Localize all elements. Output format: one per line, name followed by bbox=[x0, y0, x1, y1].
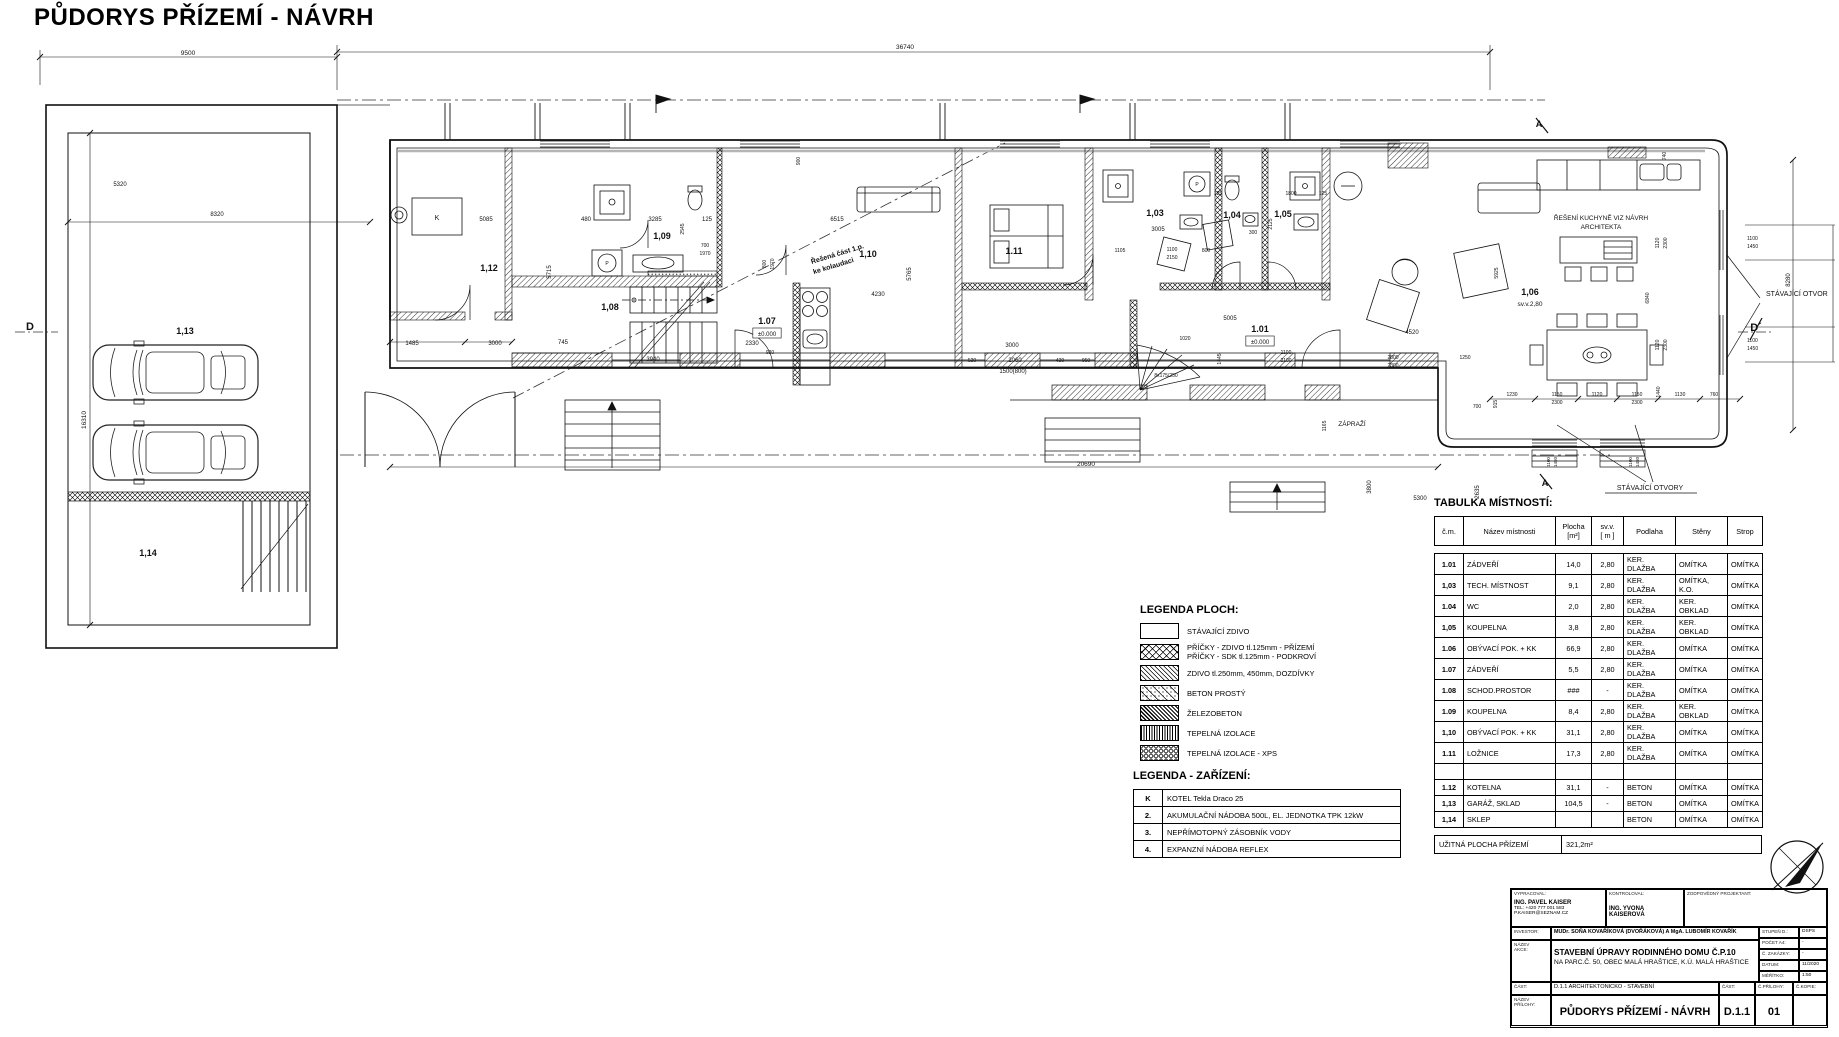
rooms-header-cell: sv.v. [ m ] bbox=[1592, 517, 1624, 546]
rooms-cell bbox=[1556, 812, 1592, 828]
tb-akce-label: NÁZEV AKCE: bbox=[1511, 940, 1551, 982]
zarizeni-cell: KOTEL Tekla Draco 25 bbox=[1163, 790, 1401, 807]
plan-label: 2300 bbox=[1663, 237, 1669, 248]
plan-label: 1100 bbox=[1747, 338, 1758, 344]
plan-label: 740 bbox=[1662, 152, 1668, 161]
rooms-cell: - bbox=[1592, 796, 1624, 812]
plan-label: A bbox=[1536, 119, 1543, 129]
rooms-cell bbox=[1435, 764, 1464, 780]
plan-label: 950 bbox=[1082, 358, 1091, 364]
rooms-cell bbox=[1592, 812, 1624, 828]
legend-zarizeni-title: LEGENDA - ZAŘÍZENÍ: bbox=[1133, 770, 1401, 782]
plan-label: 5300 bbox=[1413, 496, 1427, 502]
rooms-cell: OMÍTKA bbox=[1728, 554, 1763, 575]
rooms-row: 1.04WC2,02,80KER. DLAŽBAKER. OBKLADOMÍTK… bbox=[1435, 596, 1763, 617]
rooms-header-cell: Plocha [m²] bbox=[1556, 517, 1592, 546]
rooms-table-title: TABULKA MÍSTNOSTÍ: bbox=[1434, 497, 1764, 509]
plan-label: 915 bbox=[1493, 400, 1499, 409]
tb-meritko-value: 1:50 bbox=[1799, 971, 1827, 982]
plan-label: 1020 bbox=[1179, 336, 1190, 342]
rooms-cell: 17,3 bbox=[1556, 743, 1592, 764]
legend-item-label: TEPELNÁ IZOLACE bbox=[1187, 729, 1255, 738]
rooms-cell bbox=[1624, 764, 1676, 780]
plan-label: D´ bbox=[1750, 322, 1762, 334]
hatch-swatch-icon bbox=[1140, 665, 1179, 681]
plan-label: 1450 bbox=[1635, 456, 1640, 467]
usable-area-label: UŽITNÁ PLOCHA PŘÍZEMÍ bbox=[1435, 836, 1562, 854]
zarizeni-cell: 3. bbox=[1134, 824, 1163, 841]
tb-priloha-label: NÁZEV PŘÍLOHY: bbox=[1511, 995, 1551, 1026]
plan-label: ZÁPRAŽÍ bbox=[1338, 419, 1366, 428]
rooms-cell: OMÍTKA bbox=[1728, 575, 1763, 596]
plan-label: 800 bbox=[1202, 248, 1211, 254]
empty-swatch-icon bbox=[1140, 623, 1179, 639]
plan-label: 2150 bbox=[1166, 255, 1177, 261]
garage-stairs-icon bbox=[241, 501, 308, 592]
plan-label: 5715 bbox=[547, 265, 553, 279]
legend-item-label: ŽELEZOBETON bbox=[1187, 709, 1242, 718]
rooms-cell bbox=[1676, 764, 1728, 780]
zarizeni-cell: EXPANZNÍ NÁDOBA REFLEX bbox=[1163, 841, 1401, 858]
plan-label: 1120 bbox=[1592, 392, 1603, 398]
car-icon bbox=[93, 421, 258, 484]
plan-label: 5765 bbox=[907, 267, 913, 281]
rooms-cell: 1,10 bbox=[1435, 722, 1464, 743]
rooms-row: 1.11LOŽNICE17,32,80KER. DLAŽBAOMÍTKAOMÍT… bbox=[1435, 743, 1763, 764]
plan-label: 3940 bbox=[646, 357, 660, 363]
legend-item-label: STÁVAJÍCÍ ZDIVO bbox=[1187, 627, 1249, 636]
tb-prilohy-label: Č.PŘÍLOHY: bbox=[1755, 982, 1793, 995]
rooms-row: 1,03TECH. MÍSTNOST9,12,80KER. DLAŽBAOMÍT… bbox=[1435, 575, 1763, 596]
rooms-cell: 1,03 bbox=[1435, 575, 1464, 596]
rooms-cell: 2,80 bbox=[1592, 659, 1624, 680]
plan-label: 5925 bbox=[1494, 267, 1500, 278]
plan-label: P bbox=[605, 261, 609, 267]
plan-label: 1970 bbox=[699, 251, 710, 257]
rooms-cell: OMÍTKA bbox=[1728, 617, 1763, 638]
rooms-row: 1.01ZÁDVEŘÍ14,02,80KER. DLAŽBAOMÍTKAOMÍT… bbox=[1435, 554, 1763, 575]
plan-label: 5320 bbox=[113, 182, 127, 188]
rooms-cell: ### bbox=[1556, 680, 1592, 701]
rooms-cell: 2,0 bbox=[1556, 596, 1592, 617]
plan-label: 1130 bbox=[1675, 392, 1686, 398]
plan-label: 125 bbox=[1319, 191, 1328, 197]
plan-label: 1.11 bbox=[1005, 246, 1022, 256]
plan-label: 1165 bbox=[1322, 420, 1328, 431]
rooms-cell: 1.11 bbox=[1435, 743, 1464, 764]
plan-label: STÁVAJÍCÍ OTVOR bbox=[1766, 289, 1828, 298]
rooms-cell: KER. OBKLAD bbox=[1676, 596, 1728, 617]
tb-cast-label: ČÁST: bbox=[1511, 982, 1551, 995]
rooms-row: 1,14SKLEPBETONOMÍTKAOMÍTKA bbox=[1435, 812, 1763, 828]
plan-label: 1800 bbox=[1285, 191, 1296, 197]
rooms-cell: OMÍTKA bbox=[1728, 722, 1763, 743]
leader-lines bbox=[1536, 118, 1762, 493]
rooms-cell: 31,1 bbox=[1556, 722, 1592, 743]
plan-label: 2300 bbox=[1663, 339, 1669, 350]
rooms-cell: 1.04 bbox=[1435, 596, 1464, 617]
plan-label: 2545 bbox=[680, 223, 686, 234]
tb-vypracoval: VYPRACOVAL: ING. PAVEL KAISER TEL: +420 … bbox=[1511, 889, 1606, 927]
plan-label: 420 bbox=[1056, 358, 1065, 364]
rooms-cell: BETON bbox=[1624, 812, 1676, 828]
plan-label: K bbox=[435, 215, 440, 222]
zb-swatch-icon bbox=[1140, 705, 1179, 721]
legend-zarizeni-table: KKOTEL Tekla Draco 252.AKUMULAČNÍ NÁDOBA… bbox=[1133, 789, 1401, 858]
tb-kopie-value bbox=[1793, 995, 1827, 1026]
rooms-cell: - bbox=[1592, 680, 1624, 701]
plan-label: D bbox=[26, 321, 34, 333]
rooms-cell: WC bbox=[1464, 596, 1556, 617]
rooms-cell: 2,80 bbox=[1592, 617, 1624, 638]
rooms-cell: GARÁŽ, SKLAD bbox=[1464, 796, 1556, 812]
rooms-table-footer: UŽITNÁ PLOCHA PŘÍZEMÍ 321,2m² bbox=[1434, 835, 1762, 854]
floorplan-page: { "page": { "title": "PŮDORYS PŘÍZEMÍ - … bbox=[0, 0, 1839, 1037]
plan-label: 2125 bbox=[1268, 218, 1274, 229]
rooms-cell: OMÍTKA bbox=[1676, 796, 1728, 812]
rooms-cell: BETON bbox=[1624, 780, 1676, 796]
legend-ploch: LEGENDA PLOCH: STÁVAJÍCÍ ZDIVOPŘÍČKY - Z… bbox=[1140, 604, 1420, 765]
plan-label: 700 bbox=[701, 243, 710, 249]
rooms-cell: 1.09 bbox=[1435, 701, 1464, 722]
plan-label: 900 bbox=[796, 157, 802, 166]
plan-label: 3800 bbox=[1367, 480, 1373, 494]
rooms-cell: KER. DLAŽBA bbox=[1624, 743, 1676, 764]
rooms-row: 1.06OBÝVACÍ POK. + KK66,92,80KER. DLAŽBA… bbox=[1435, 638, 1763, 659]
legend-item-label: TEPELNÁ IZOLACE - XPS bbox=[1187, 749, 1277, 758]
plan-label: 1250 bbox=[1459, 355, 1470, 361]
rooms-cell: OMÍTKA bbox=[1728, 638, 1763, 659]
plan-label: 2300 bbox=[1551, 400, 1562, 406]
rooms-cell: OMÍTKA bbox=[1728, 780, 1763, 796]
plan-label: 745 bbox=[558, 340, 569, 346]
rooms-cell: SKLEP bbox=[1464, 812, 1556, 828]
plan-label: 9500 bbox=[181, 50, 196, 57]
rooms-cell: - bbox=[1592, 780, 1624, 796]
tb-cast-value: D.1.1 ARCHITEKTONICKO - STAVEBNÍ bbox=[1551, 982, 1719, 995]
rooms-cell: KER. DLAŽBA bbox=[1624, 722, 1676, 743]
rooms-row: 1,05KOUPELNA3,82,80KER. DLAŽBAKER. OBKLA… bbox=[1435, 617, 1763, 638]
tb-pocet-value: - bbox=[1799, 938, 1827, 949]
plan-label: ŘEŠENÍ KUCHYNĚ VIZ NÁVRH bbox=[1554, 213, 1649, 222]
rooms-table-body: 1.01ZÁDVEŘÍ14,02,80KER. DLAŽBAOMÍTKAOMÍT… bbox=[1434, 553, 1763, 828]
rooms-cell: KOUPELNA bbox=[1464, 617, 1556, 638]
plan-label: 3000 bbox=[1005, 343, 1019, 349]
rooms-cell: 9,1 bbox=[1556, 575, 1592, 596]
rooms-cell: OBÝVACÍ POK. + KK bbox=[1464, 638, 1556, 659]
rooms-cell: 104,5 bbox=[1556, 796, 1592, 812]
rooms-cell: OMÍTKA bbox=[1676, 554, 1728, 575]
plan-label: 2300 bbox=[1631, 400, 1642, 406]
rooms-cell: OMÍTKA bbox=[1728, 796, 1763, 812]
rooms-cell: OMÍTKA bbox=[1676, 743, 1728, 764]
rooms-cell bbox=[1464, 764, 1556, 780]
plan-label: 1,08 bbox=[601, 302, 619, 312]
title-block: VYPRACOVAL: ING. PAVEL KAISER TEL: +420 … bbox=[1510, 888, 1828, 1028]
plan-label: 4520 bbox=[1405, 330, 1419, 336]
car-icon bbox=[93, 341, 258, 404]
rooms-cell: KER. DLAŽBA bbox=[1624, 575, 1676, 596]
plan-label: 1500(800) bbox=[999, 369, 1026, 375]
plan-label: ARCHITEKTA bbox=[1581, 224, 1622, 231]
tb-cast-code: D.1.1 bbox=[1719, 995, 1755, 1026]
rooms-cell: 1,05 bbox=[1435, 617, 1464, 638]
rooms-cell: KER. OBKLAD bbox=[1676, 701, 1728, 722]
plan-label: 1,12 bbox=[480, 263, 498, 273]
plan-label: 1120 bbox=[1655, 339, 1661, 350]
rooms-cell: OMÍTKA bbox=[1676, 780, 1728, 796]
rooms-cell: KER. DLAŽBA bbox=[1624, 638, 1676, 659]
plan-label: 1150 bbox=[1552, 392, 1563, 398]
rooms-cell: OMÍTKA bbox=[1728, 743, 1763, 764]
plan-label: 16310 bbox=[81, 411, 88, 429]
rooms-cell: 2,80 bbox=[1592, 722, 1624, 743]
tb-pocet-label: POČET A4: bbox=[1759, 938, 1799, 949]
rooms-cell: 8,4 bbox=[1556, 701, 1592, 722]
plan-label: 4230 bbox=[871, 292, 885, 298]
rooms-row: 1.09KOUPELNA8,42,80KER. DLAŽBAKER. OBKLA… bbox=[1435, 701, 1763, 722]
legend-item: ZDIVO tl.250mm, 450mm, DOZDÍVKY bbox=[1140, 665, 1420, 681]
rooms-cell: OMÍTKA bbox=[1728, 701, 1763, 722]
plan-label: A bbox=[1542, 478, 1549, 488]
rooms-header-cell: Název místnosti bbox=[1464, 517, 1556, 546]
plan-label: 1,06 bbox=[1521, 287, 1539, 297]
rooms-table: TABULKA MÍSTNOSTÍ: č.m.Název místnostiPl… bbox=[1434, 497, 1764, 854]
legend-item: BETON PROSTÝ bbox=[1140, 685, 1420, 701]
beton-swatch-icon bbox=[1140, 685, 1179, 701]
plan-label: 1100 bbox=[1167, 247, 1178, 253]
plan-label: 2060 bbox=[1008, 358, 1022, 364]
plan-label: 1,03 bbox=[1146, 208, 1164, 218]
xps-swatch-icon bbox=[1140, 745, 1179, 761]
tb-datum-value: 11/2020 bbox=[1799, 960, 1827, 971]
plan-label: 5085 bbox=[479, 217, 493, 223]
plan-label: 3285 bbox=[648, 217, 662, 223]
plan-label: 920 bbox=[766, 350, 775, 356]
plan-label: 760 bbox=[1710, 392, 1719, 398]
rooms-cell: 1,14 bbox=[1435, 812, 1464, 828]
plan-label: 1150 bbox=[1632, 392, 1643, 398]
rooms-cell: BETON bbox=[1624, 796, 1676, 812]
tb-zakazky-label: Č. ZAKÁZKY: bbox=[1759, 949, 1799, 960]
plan-label: 1450 bbox=[1747, 346, 1758, 352]
tb-zodpovedny: ZODPOVĚDNÝ PROJEKTANT: bbox=[1684, 889, 1827, 927]
plan-label: 1.07 bbox=[758, 316, 776, 326]
rooms-cell: OMÍTKA bbox=[1728, 596, 1763, 617]
rooms-cell: KOTELNA bbox=[1464, 780, 1556, 796]
plan-label: 1445 bbox=[1217, 353, 1223, 364]
plan-labels: 1,131,141,121,091,081.07±0.0001,101.111,… bbox=[26, 44, 1828, 558]
plan-label: 1,09 bbox=[653, 231, 671, 241]
plan-label: ±0.000 bbox=[1251, 340, 1270, 346]
zarizeni-row: KKOTEL Tekla Draco 25 bbox=[1134, 790, 1401, 807]
zarizeni-row: 2.AKUMULAČNÍ NÁDOBA 500L, EL. JEDNOTKA T… bbox=[1134, 807, 1401, 824]
izol-swatch-icon bbox=[1140, 725, 1179, 741]
rooms-header-cell: Stěny bbox=[1676, 517, 1728, 546]
rooms-cell: OMÍTKA, K.O. bbox=[1676, 575, 1728, 596]
zarizeni-cell: 4. bbox=[1134, 841, 1163, 858]
legend-item-label: ZDIVO tl.250mm, 450mm, DOZDÍVKY bbox=[1187, 669, 1315, 678]
axis-lines bbox=[15, 100, 1772, 455]
tb-investor-label: INVESTOR: bbox=[1511, 927, 1551, 940]
rooms-cell: KER. DLAŽBA bbox=[1624, 659, 1676, 680]
rooms-cell: KER. DLAŽBA bbox=[1624, 596, 1676, 617]
plan-label: 1105 bbox=[1115, 248, 1126, 254]
rooms-cell: OMÍTKA bbox=[1676, 680, 1728, 701]
legend-zarizeni: LEGENDA - ZAŘÍZENÍ: KKOTEL Tekla Draco 2… bbox=[1133, 770, 1401, 858]
plan-label: 1230 bbox=[1506, 392, 1517, 398]
plan-label: 5005 bbox=[1223, 316, 1237, 322]
rooms-cell: 1.07 bbox=[1435, 659, 1464, 680]
plan-label: 2330 bbox=[745, 341, 759, 347]
rooms-cell bbox=[1592, 764, 1624, 780]
page-title: PŮDORYS PŘÍZEMÍ - NÁVRH bbox=[34, 4, 374, 32]
plan-label: 8280 bbox=[1786, 273, 1792, 287]
plan-label: 1485 bbox=[405, 341, 419, 347]
rooms-cell: 2,80 bbox=[1592, 638, 1624, 659]
zarizeni-cell: K bbox=[1134, 790, 1163, 807]
plan-label: 6840 bbox=[1645, 292, 1651, 303]
rooms-cell: 1.06 bbox=[1435, 638, 1464, 659]
rooms-cell: OMÍTKA bbox=[1676, 659, 1728, 680]
rooms-header-cell: č.m. bbox=[1435, 517, 1464, 546]
plan-label: sv.v.2,80 bbox=[1517, 301, 1542, 308]
plan-label: STÁVAJÍCÍ OTVORY bbox=[1617, 483, 1684, 492]
plan-label: 1120 bbox=[1655, 237, 1661, 248]
legend-item: TEPELNÁ IZOLACE - XPS bbox=[1140, 745, 1420, 761]
tb-akce-value: STAVEBNÍ ÚPRAVY RODINNÉHO DOMU Č.P.10 NA… bbox=[1551, 940, 1759, 982]
plan-label: 1,04 bbox=[1223, 210, 1241, 220]
plan-label: 520 bbox=[968, 358, 977, 364]
plan-label: 125 bbox=[702, 217, 713, 223]
zarizeni-cell: AKUMULAČNÍ NÁDOBA 500L, EL. JEDNOTKA TPK… bbox=[1163, 807, 1401, 824]
rooms-row: 1.08SCHOD.PROSTOR###-KER. DLAŽBAOMÍTKAOM… bbox=[1435, 680, 1763, 701]
rooms-cell: 31,1 bbox=[1556, 780, 1592, 796]
plan-label: 1,05 bbox=[1274, 209, 1292, 219]
plan-label: P bbox=[1195, 182, 1199, 188]
tb-kontroloval: KONTROLOVAL: ING. YVONA KAISEROVÁ bbox=[1606, 889, 1684, 927]
rooms-cell: KER. DLAŽBA bbox=[1624, 701, 1676, 722]
rooms-row: 1,10OBÝVACÍ POK. + KK31,12,80KER. DLAŽBA… bbox=[1435, 722, 1763, 743]
tb-zakazky-value: - bbox=[1799, 949, 1827, 960]
plan-label: 480 bbox=[581, 217, 592, 223]
rooms-cell: KER. DLAŽBA bbox=[1624, 680, 1676, 701]
plan-label: 1100 bbox=[1628, 457, 1633, 467]
rooms-header-cell: Strop bbox=[1728, 517, 1763, 546]
legend-item: PŘÍČKY - ZDIVO tl.125mm - PŘÍZEMÍ PŘÍČKY… bbox=[1140, 643, 1420, 661]
plan-label: ±0.000 bbox=[758, 332, 777, 338]
plan-label: 1450 bbox=[1553, 456, 1558, 467]
cross-swatch-icon bbox=[1140, 644, 1179, 660]
rooms-cell: OMÍTKA bbox=[1676, 812, 1728, 828]
legend-item: STÁVAJÍCÍ ZDIVO bbox=[1140, 623, 1420, 639]
tb-meritko-label: MĚŘÍTKO: bbox=[1759, 971, 1799, 982]
rooms-cell: 1.01 bbox=[1435, 554, 1464, 575]
canopy-posts bbox=[445, 95, 1290, 140]
rooms-cell: OBÝVACÍ POK. + KK bbox=[1464, 722, 1556, 743]
plan-label: 1970 bbox=[770, 258, 776, 269]
tb-kopie-label: Č.KOPIE: bbox=[1793, 982, 1827, 995]
rooms-row: 1.07ZÁDVEŘÍ5,52,80KER. DLAŽBAOMÍTKAOMÍTK… bbox=[1435, 659, 1763, 680]
plan-label: 1440 bbox=[1656, 386, 1662, 397]
zarizeni-cell: NEPŘÍMOTOPNÝ ZÁSOBNÍK VODY bbox=[1163, 824, 1401, 841]
rooms-cell: 66,9 bbox=[1556, 638, 1592, 659]
plan-label: 125 bbox=[1214, 191, 1223, 197]
plan-label: 1100 bbox=[1546, 457, 1551, 467]
plan-label: 8x175/250 bbox=[1154, 373, 1178, 379]
zarizeni-cell: 2. bbox=[1134, 807, 1163, 824]
rooms-header-cell: Podlaha bbox=[1624, 517, 1676, 546]
plan-label: 8320 bbox=[210, 212, 224, 218]
rooms-cell: LOŽNICE bbox=[1464, 743, 1556, 764]
rooms-cell: 2,80 bbox=[1592, 596, 1624, 617]
rooms-row: 1,13GARÁŽ, SKLAD104,5-BETONOMÍTKAOMÍTKA bbox=[1435, 796, 1763, 812]
rooms-row: 1.12KOTELNA31,1-BETONOMÍTKAOMÍTKA bbox=[1435, 780, 1763, 796]
rooms-cell: 2,80 bbox=[1592, 554, 1624, 575]
legend-item: TEPELNÁ IZOLACE bbox=[1140, 725, 1420, 741]
rooms-cell: KER. DLAŽBA bbox=[1624, 617, 1676, 638]
rooms-cell: 1,13 bbox=[1435, 796, 1464, 812]
rooms-cell: OMÍTKA bbox=[1728, 812, 1763, 828]
legend-item-label: BETON PROSTÝ bbox=[1187, 689, 1246, 698]
rooms-cell: KER. OBKLAD bbox=[1676, 617, 1728, 638]
plan-label: 3005 bbox=[1151, 227, 1165, 233]
plan-label: 2800 bbox=[1387, 355, 1398, 361]
legend-item-label: PŘÍČKY - ZDIVO tl.125mm - PŘÍZEMÍ PŘÍČKY… bbox=[1187, 643, 1316, 661]
plan-label: 1450 bbox=[1747, 244, 1758, 250]
plan-label: 20690 bbox=[1077, 461, 1095, 468]
rooms-cell: KER. DLAŽBA bbox=[1624, 554, 1676, 575]
tb-stupen-label: STUPEŇ D.: bbox=[1759, 927, 1799, 938]
plan-label: 1100 bbox=[1747, 236, 1758, 242]
rooms-cell: 2,80 bbox=[1592, 743, 1624, 764]
rooms-table-header: č.m.Název místnostiPlocha [m²]sv.v. [ m … bbox=[1434, 516, 1763, 546]
plan-label: 1,14 bbox=[139, 548, 157, 558]
plan-label: 2300 bbox=[1387, 363, 1398, 369]
tb-investor-value: MUDr. SOŇA KOVAŘÍKOVÁ (DVOŘÁKOVÁ) A MgA.… bbox=[1551, 927, 1759, 940]
rooms-cell: 1.08 bbox=[1435, 680, 1464, 701]
plan-label: 1.01 bbox=[1251, 324, 1269, 334]
plan-label: 800 bbox=[762, 260, 768, 269]
rooms-cell: OMÍTKA bbox=[1728, 659, 1763, 680]
legend-item: ŽELEZOBETON bbox=[1140, 705, 1420, 721]
zarizeni-row: 3.NEPŘÍMOTOPNÝ ZÁSOBNÍK VODY bbox=[1134, 824, 1401, 841]
plan-label: 6515 bbox=[830, 217, 844, 223]
rooms-cell: 1.12 bbox=[1435, 780, 1464, 796]
rooms-cell: SCHOD.PROSTOR bbox=[1464, 680, 1556, 701]
plan-label: 2100 bbox=[1280, 358, 1291, 364]
plan-label: 1,13 bbox=[176, 326, 194, 336]
rooms-cell: ZÁDVEŘÍ bbox=[1464, 659, 1556, 680]
rooms-cell: KOUPELNA bbox=[1464, 701, 1556, 722]
rooms-row bbox=[1435, 764, 1763, 780]
rooms-cell: 2,80 bbox=[1592, 701, 1624, 722]
rooms-cell: ZÁDVEŘÍ bbox=[1464, 554, 1556, 575]
rooms-cell: OMÍTKA bbox=[1676, 638, 1728, 659]
plan-label: 1100 bbox=[1281, 350, 1292, 356]
rooms-cell: 5,5 bbox=[1556, 659, 1592, 680]
legend-ploch-title: LEGENDA PLOCH: bbox=[1140, 604, 1420, 616]
tb-priloha-title: PŮDORYS PŘÍZEMÍ - NÁVRH bbox=[1551, 995, 1719, 1026]
zarizeni-row: 4.EXPANZNÍ NÁDOBA REFLEX bbox=[1134, 841, 1401, 858]
north-arrow-icon bbox=[1771, 841, 1823, 893]
door-arcs bbox=[435, 220, 1340, 368]
tb-priloha-num: 01 bbox=[1755, 995, 1793, 1026]
tb-datum-label: DATUM: bbox=[1759, 960, 1799, 971]
rooms-cell: OMÍTKA bbox=[1728, 680, 1763, 701]
exterior-stairs bbox=[565, 400, 1325, 512]
rooms-cell: 14,0 bbox=[1556, 554, 1592, 575]
